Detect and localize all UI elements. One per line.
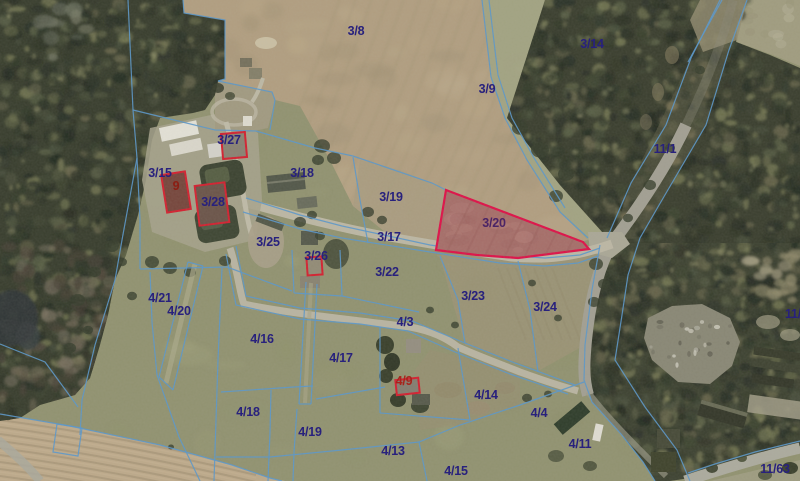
svg-text:3/17: 3/17 xyxy=(377,230,401,244)
svg-text:3/15: 3/15 xyxy=(148,166,172,180)
svg-text:4/14: 4/14 xyxy=(474,388,498,402)
svg-text:11/63: 11/63 xyxy=(760,462,790,476)
svg-text:4/15: 4/15 xyxy=(444,464,468,478)
svg-text:11/1: 11/1 xyxy=(654,142,677,156)
svg-text:4/3: 4/3 xyxy=(397,315,414,329)
svg-text:3/22: 3/22 xyxy=(375,265,399,279)
svg-text:4/21: 4/21 xyxy=(148,291,172,305)
svg-text:3/27: 3/27 xyxy=(217,133,241,147)
svg-text:4/11: 4/11 xyxy=(569,437,592,451)
svg-text:3/18: 3/18 xyxy=(290,166,314,180)
svg-text:4/17: 4/17 xyxy=(329,351,353,365)
svg-text:4/18: 4/18 xyxy=(236,405,260,419)
svg-text:4/4: 4/4 xyxy=(531,406,548,420)
svg-text:4/16: 4/16 xyxy=(250,332,274,346)
svg-text:3/24: 3/24 xyxy=(533,300,557,314)
svg-text:3/23: 3/23 xyxy=(461,289,485,303)
svg-text:4/13: 4/13 xyxy=(381,444,405,458)
svg-text:3/8: 3/8 xyxy=(348,24,365,38)
svg-text:3/26: 3/26 xyxy=(304,249,328,263)
svg-text:4/9: 4/9 xyxy=(396,374,413,388)
svg-text:4/20: 4/20 xyxy=(167,304,191,318)
svg-text:3/14: 3/14 xyxy=(580,37,604,51)
svg-text:3/9: 3/9 xyxy=(479,82,496,96)
svg-text:3/19: 3/19 xyxy=(379,190,403,204)
svg-text:3/20: 3/20 xyxy=(482,216,506,230)
svg-text:3/28: 3/28 xyxy=(201,195,225,209)
svg-text:11/: 11/ xyxy=(785,307,800,321)
svg-text:3/25: 3/25 xyxy=(256,235,280,249)
svg-text:4/19: 4/19 xyxy=(298,425,322,439)
svg-text:9: 9 xyxy=(173,179,180,193)
